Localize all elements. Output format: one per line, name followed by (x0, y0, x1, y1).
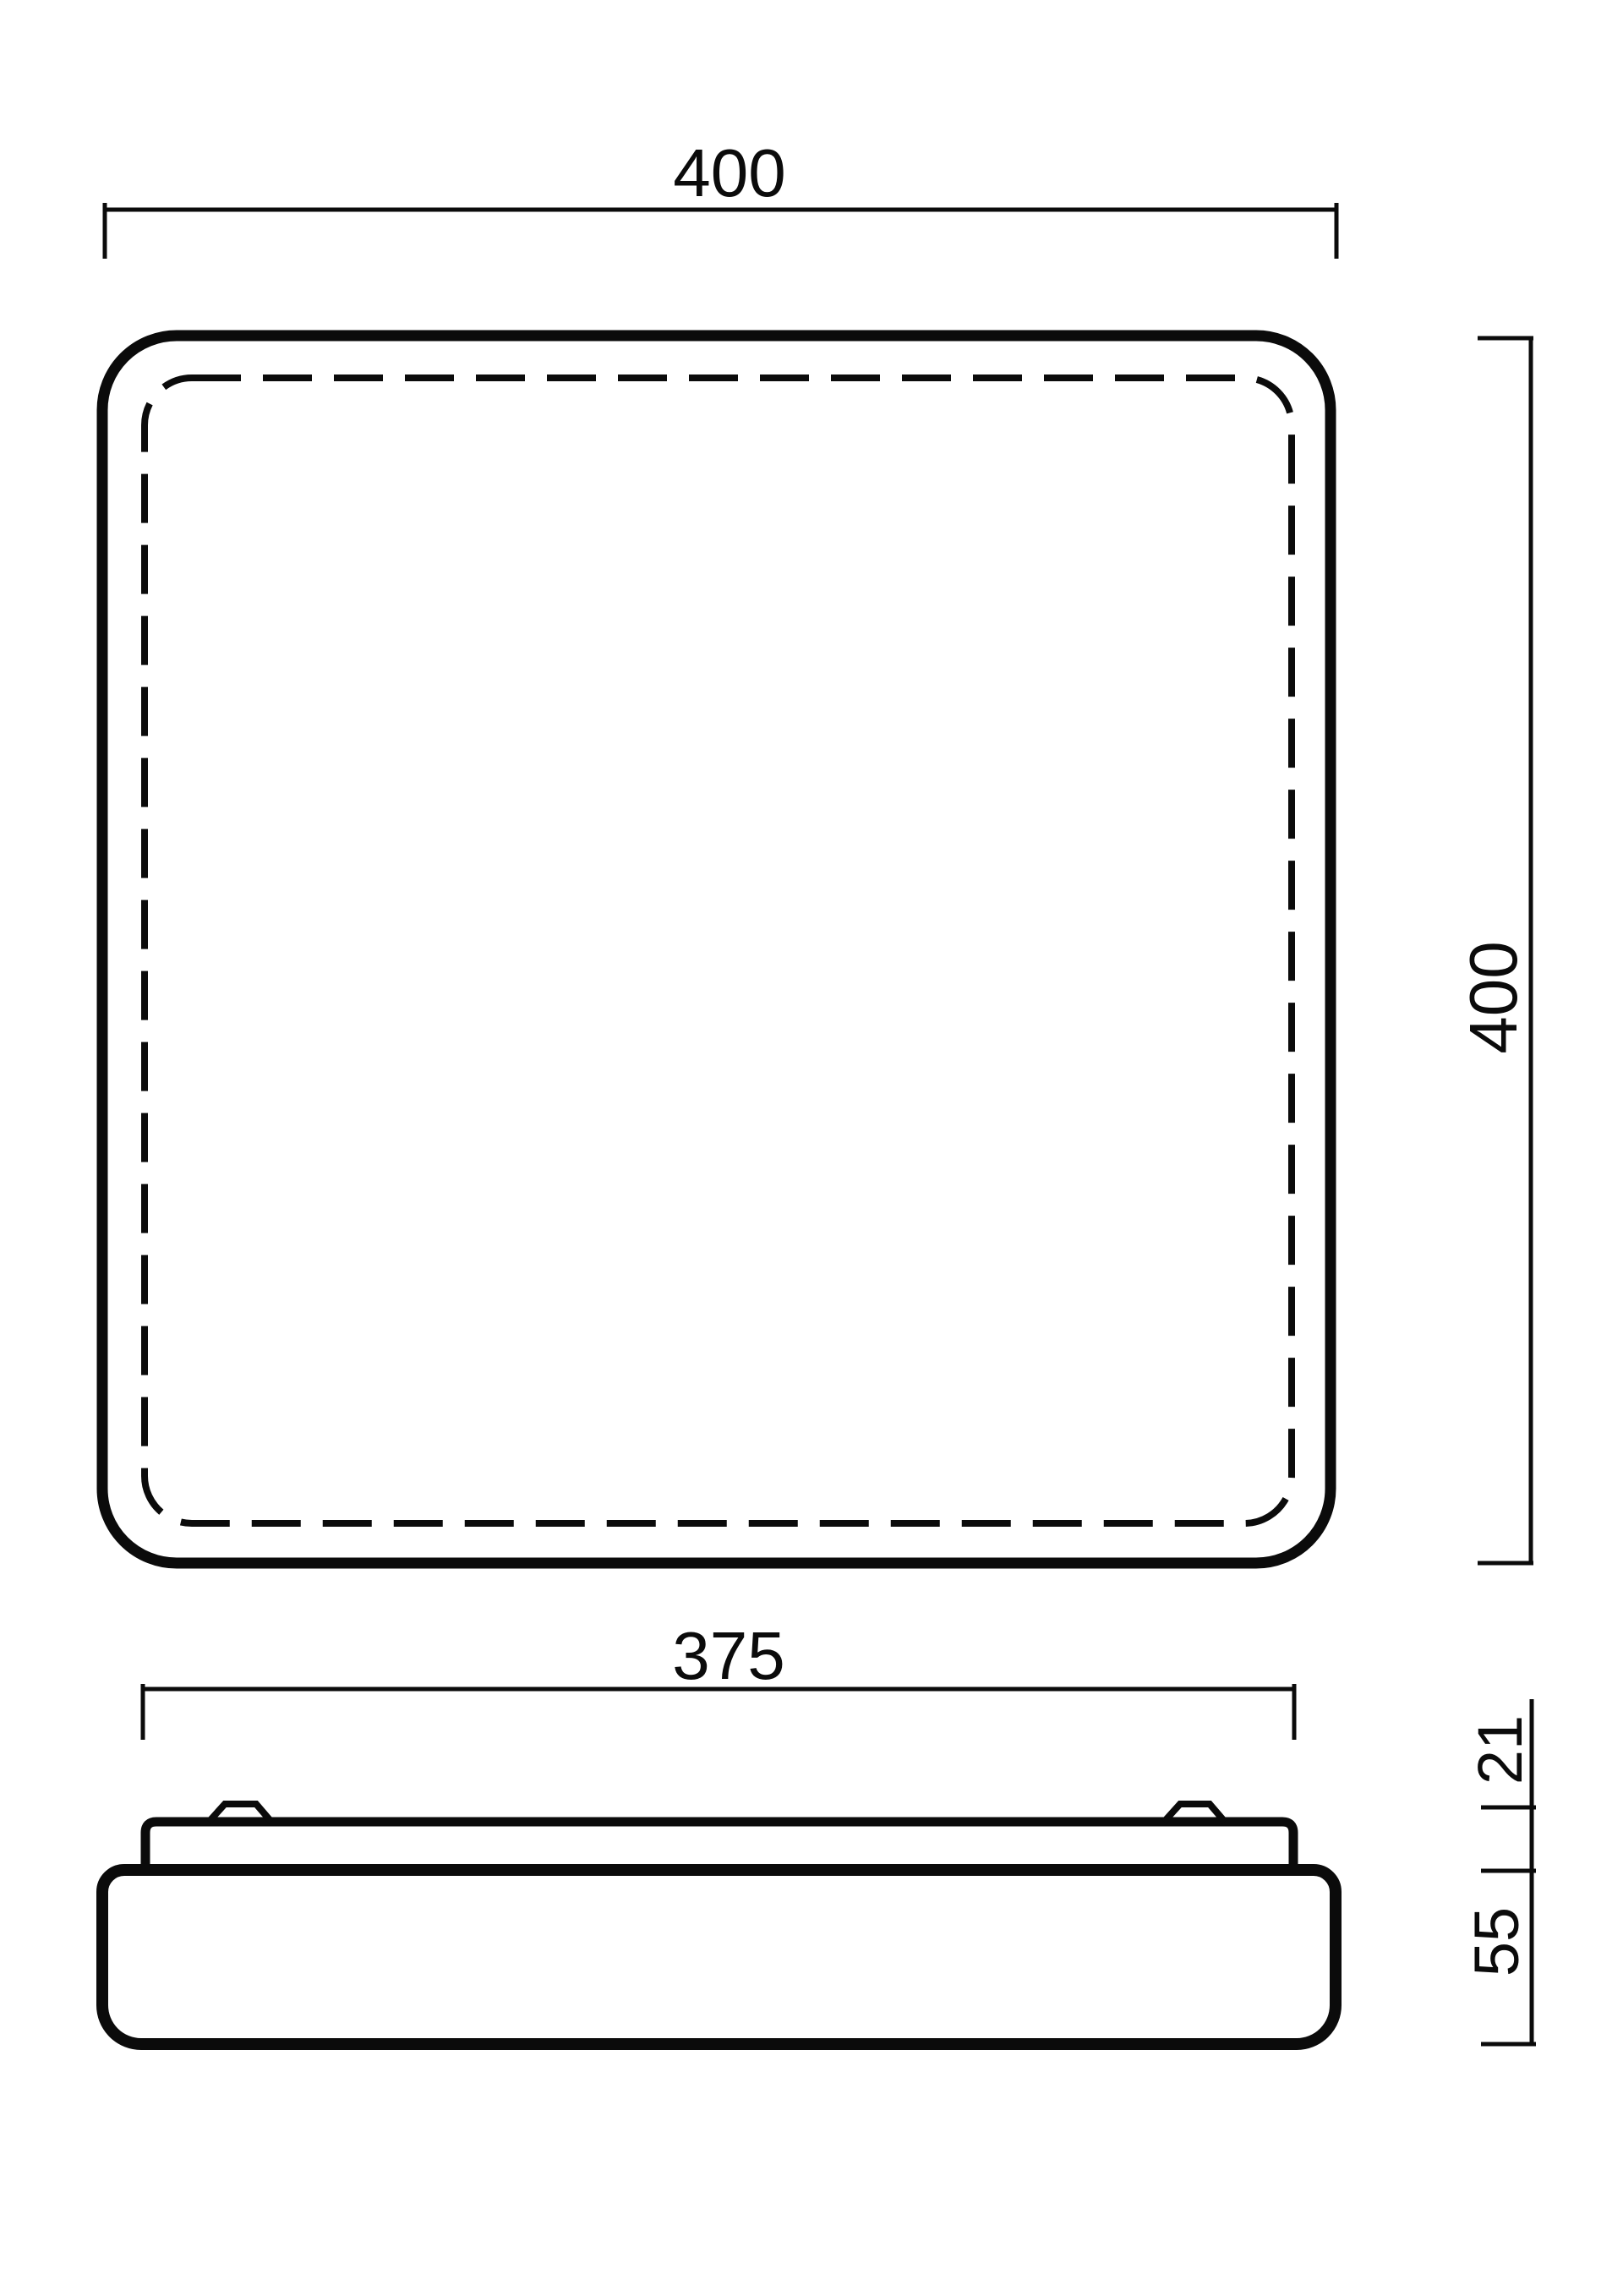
side-view-body (102, 1870, 1336, 2044)
dim-side-height: 400 (1456, 338, 1533, 1563)
dim-top-width-label: 400 (673, 135, 785, 210)
top-view-dashed-outline (145, 378, 1292, 1523)
top-view-outer-outline (102, 336, 1331, 1563)
dim-top-height-label: 21 (1465, 1715, 1535, 1785)
dim-top-width: 400 (105, 135, 1336, 259)
dim-base-width-label: 375 (672, 1618, 784, 1693)
dim-base-width: 375 (143, 1618, 1294, 1740)
dim-body-height-label: 55 (1462, 1907, 1532, 1976)
dim-side-heights: 21 55 (1462, 1699, 1536, 2044)
dim-side-height-label: 400 (1456, 941, 1531, 1053)
side-view (102, 1804, 1336, 2044)
dimension-drawing: 400 400 375 (0, 0, 1623, 2296)
top-view (102, 336, 1331, 1563)
drawing-page: 400 400 375 (0, 0, 1623, 2296)
